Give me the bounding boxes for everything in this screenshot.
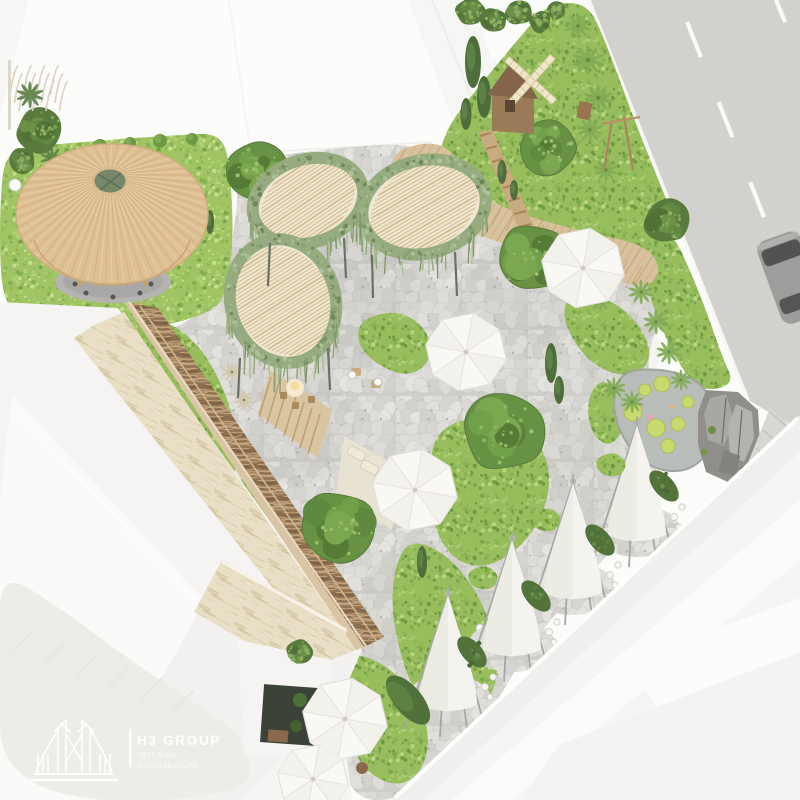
svg-text:ARCHITECTURE: ARCHITECTURE: [138, 763, 200, 770]
svg-text:H3 GROUP: H3 GROUP: [137, 733, 221, 748]
svg-text:INTERIOR: INTERIOR: [138, 752, 178, 759]
